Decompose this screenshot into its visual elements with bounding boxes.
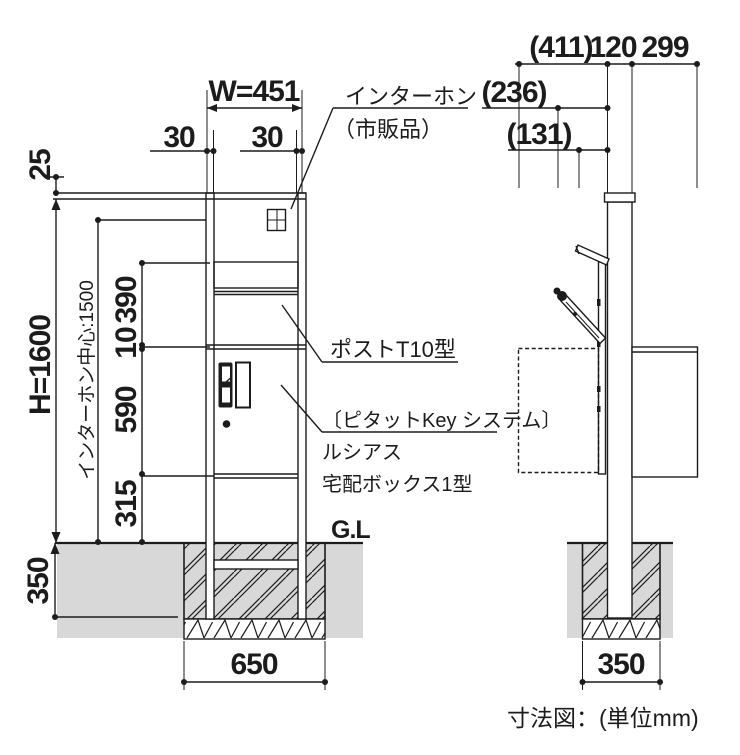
dim-lower-section: 315 (110, 480, 143, 527)
handle-plate (236, 363, 250, 408)
front-left-post (206, 193, 214, 619)
buried-crossbar (214, 560, 298, 569)
label-key-system: 〔ピタットKey システム〕 (322, 409, 561, 432)
dim-overall-depth: (411) (529, 31, 592, 64)
dimension-drawing-page: W=451 30 30 25 H=1600 インターホン中心:1500 390 … (0, 0, 740, 755)
dim-cap-height: 25 (24, 149, 57, 181)
side-gravel-hatch (583, 619, 661, 639)
dim-gap: 10 (110, 327, 143, 359)
post-bottom-line (206, 345, 306, 349)
dim-right-margin: 30 (251, 121, 283, 154)
label-intercom: インターホン (345, 84, 477, 109)
mail-slot (214, 262, 298, 288)
top-crossbar (53, 193, 306, 199)
dim-embed-depth: 350 (22, 557, 55, 604)
dim-rear-offset: 299 (641, 31, 688, 64)
dimension-drawing: W=451 30 30 25 H=1600 インターホン中心:1500 390 … (0, 0, 740, 755)
dim-left-margin: 30 (163, 121, 195, 154)
label-series-name: ルシアス (322, 442, 402, 464)
dim-total-height: H=1600 (24, 315, 57, 415)
dim-post-section: 390 (110, 276, 143, 323)
box-door-bottom-line (214, 474, 298, 478)
front-gravel-hatch (184, 619, 325, 639)
label-ground-level: G.L (331, 516, 370, 544)
dim-intercom-center: インターホン中心:1500 (76, 280, 98, 480)
dim-footing-width-front: 650 (230, 648, 277, 681)
box-handle (219, 363, 251, 428)
dim-width: W=451 (209, 75, 300, 108)
open-post-lid (576, 245, 610, 265)
side-unit-profile (599, 262, 606, 474)
dim-door-depth: (131) (506, 118, 571, 151)
side-pillar (608, 202, 633, 618)
label-post-model: ポストT10型 (330, 337, 456, 362)
drawing-caption: 寸法図：(単位mm) (507, 705, 699, 731)
label-intercom-note: （市販品） (333, 117, 443, 142)
mail-slot-flap (214, 292, 298, 295)
label-product-name: 宅配ボックス1型 (322, 473, 473, 496)
side-pillar-cap (605, 193, 636, 202)
dim-footing-width-side: 350 (597, 648, 644, 681)
intercom-box (268, 210, 286, 231)
dim-box-depth: (236) (481, 76, 546, 109)
keyhole (223, 420, 231, 428)
rear-box (632, 347, 698, 477)
dim-box-section: 590 (110, 386, 143, 433)
open-box-lever (554, 288, 606, 344)
dim-pillar-depth: 120 (589, 31, 636, 64)
